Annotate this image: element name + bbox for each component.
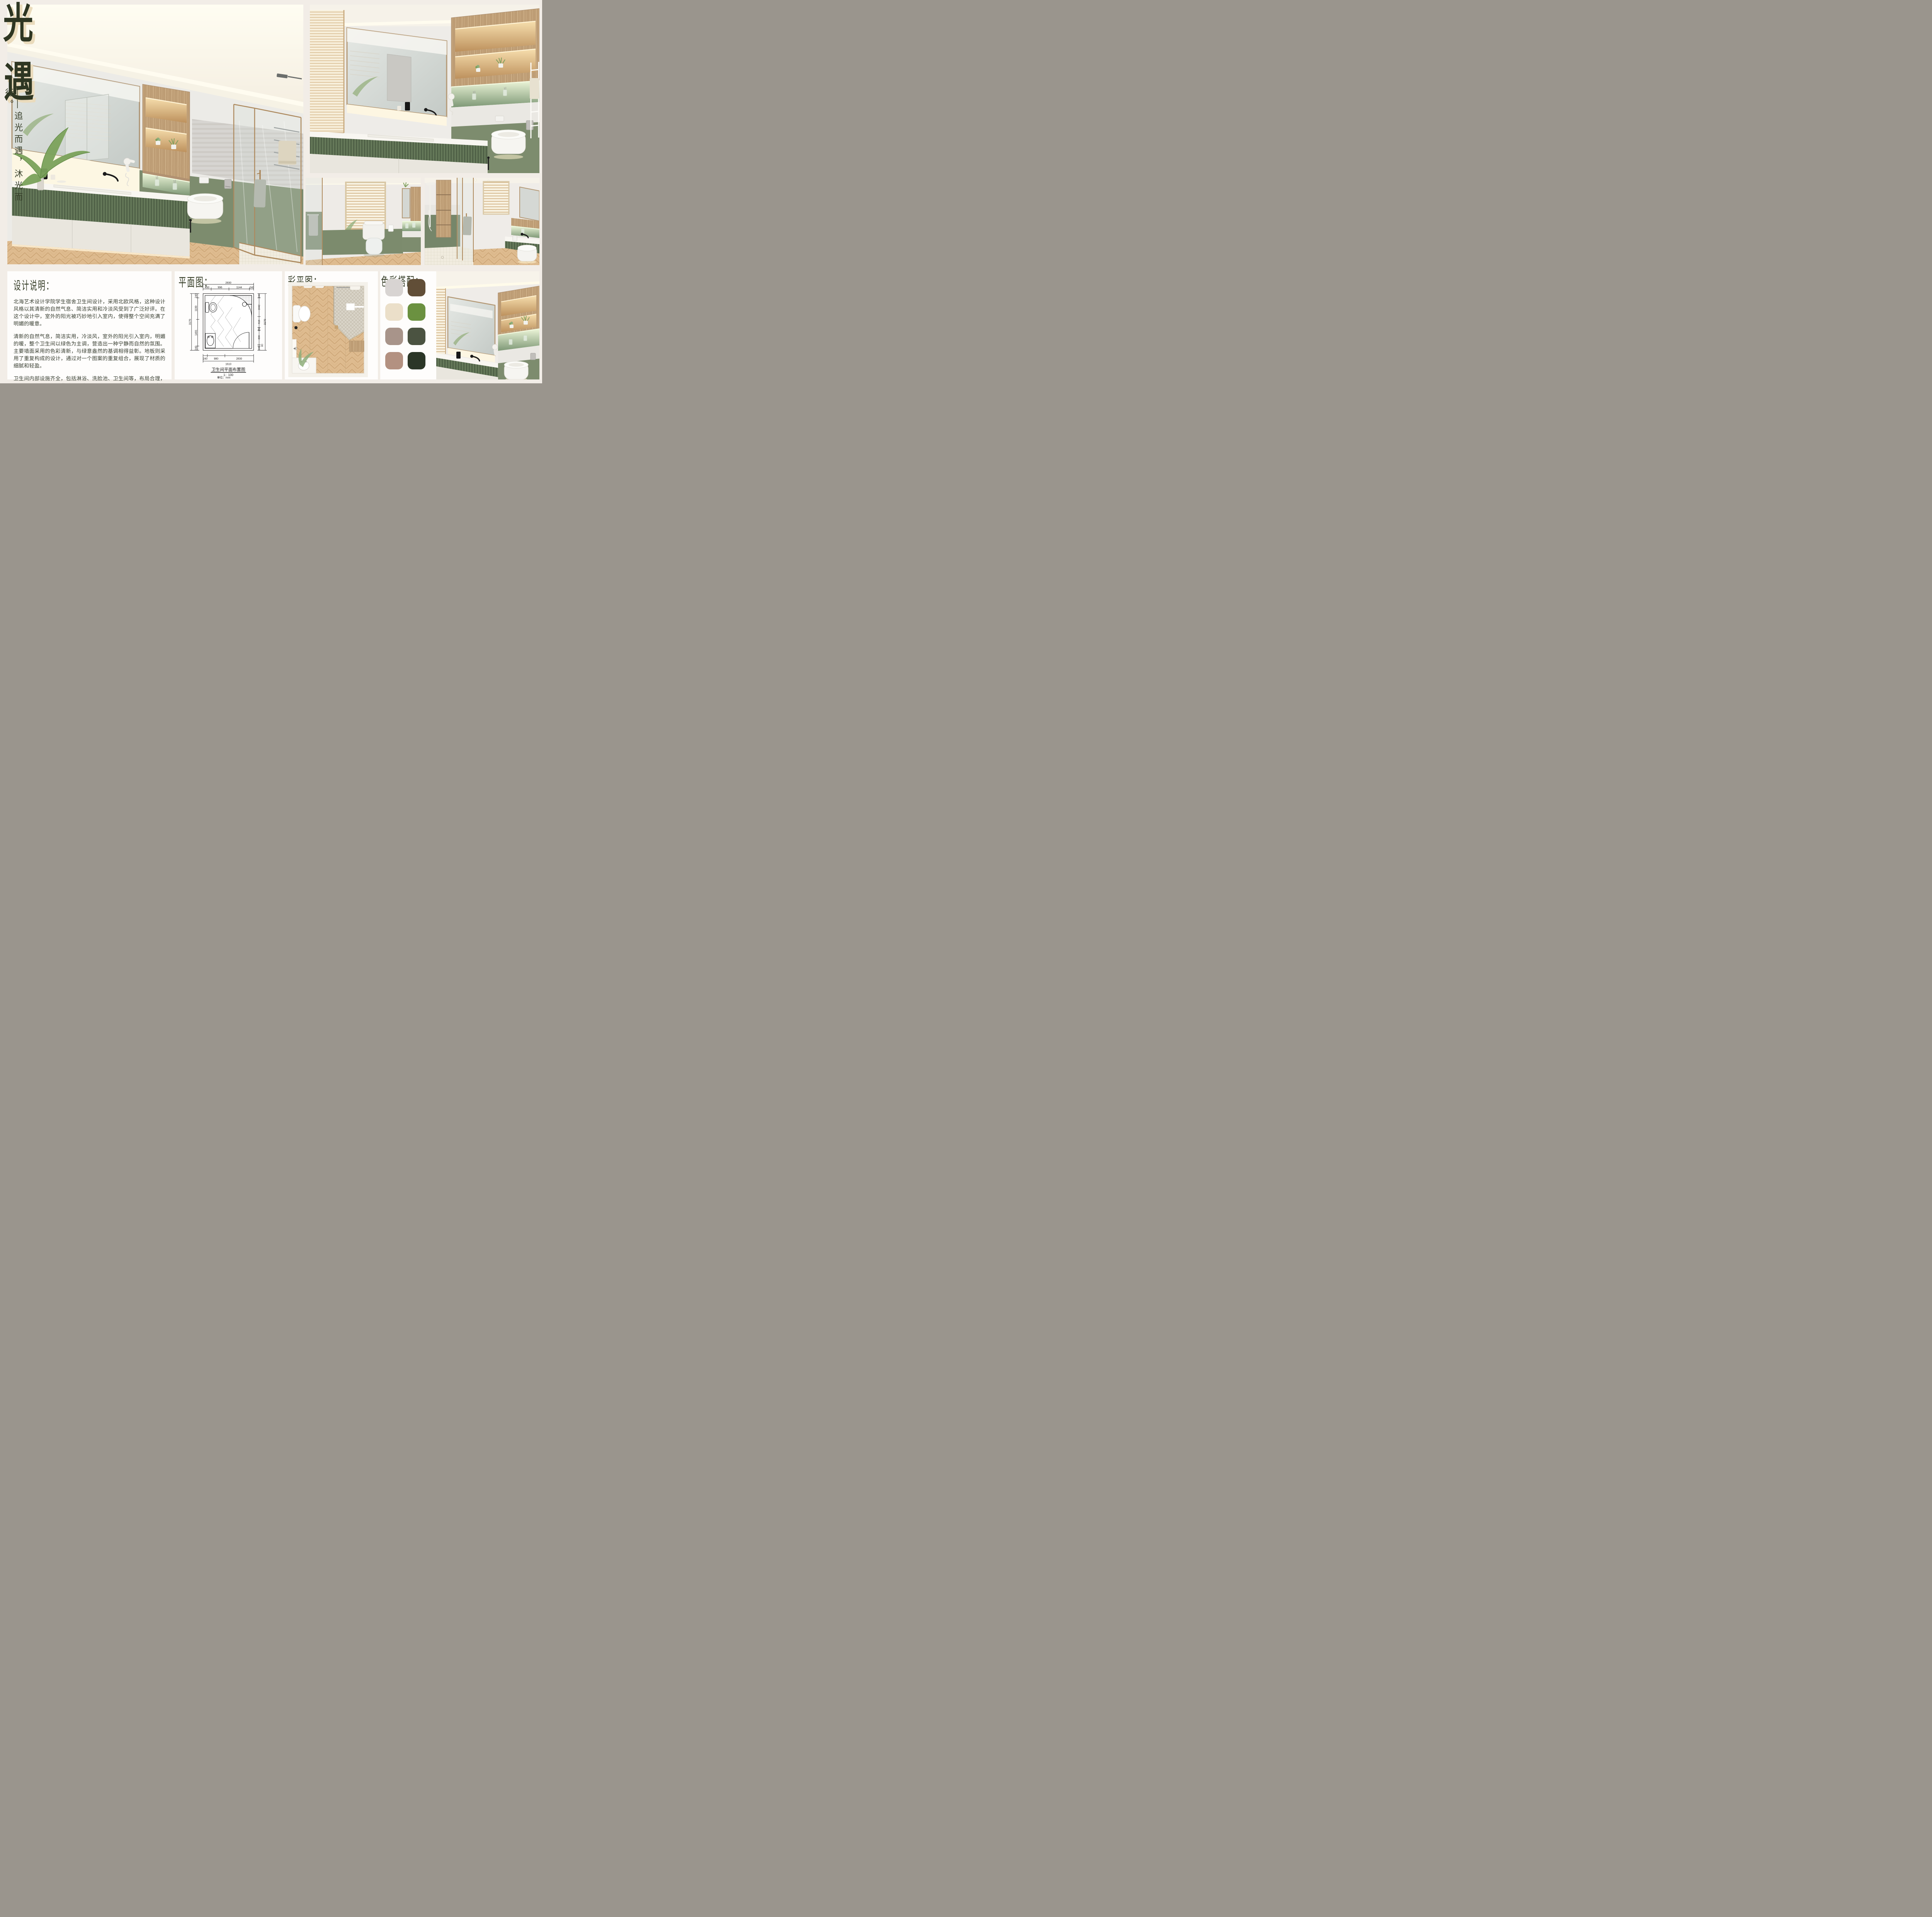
panel-color-plan: 彩平图： (285, 271, 378, 379)
palette-swatch (385, 279, 403, 296)
floor-plan-unit: 单位：mm (217, 376, 231, 379)
palette-swatch (408, 279, 425, 296)
presentation-board: 设计说明： 北海艺术设计学院学生宿舍卫生间设计，采用北欧风格，这种设计风格以其清… (0, 0, 542, 383)
palette-swatch (408, 352, 425, 369)
dim-label: 1199 (195, 306, 198, 311)
dim-label: 2830 (225, 282, 231, 284)
render-main-illustration (7, 5, 303, 264)
render-vanity-detail (310, 5, 539, 173)
dim-label: 1610 (225, 363, 231, 366)
poster-title-char-1: 光 (3, 2, 33, 44)
render-main-bathroom (7, 5, 303, 264)
render-bottom-right (436, 271, 539, 379)
dim-label: 1042 (258, 304, 260, 310)
poster-subtitle: ——追光而遇，沐光而行。 (4, 88, 22, 216)
render-toilet-window (306, 178, 421, 265)
color-plan-illustration (288, 282, 368, 377)
palette-swatch (385, 303, 403, 321)
dim-label: 240 (258, 346, 260, 350)
dim-label: 980 (214, 357, 218, 360)
render-toilet-window-illustration (306, 178, 421, 265)
panel-floor-plan: 平面图： (175, 271, 282, 379)
design-notes-heading: 设计说明： (14, 277, 165, 293)
dim-label: 450 (205, 286, 209, 289)
dim-label: 3170 (264, 319, 267, 325)
floor-plan-title: 卫生间平面布置图 (211, 367, 245, 372)
dim-label: 1144 (236, 286, 242, 289)
dim-label: 240 (195, 294, 198, 298)
floor-plan-drawing: 2830 450 996 1144 240 240 980 2830 1610 … (175, 281, 282, 379)
dim-label: 800 (258, 335, 260, 339)
render-bottom-right-illustration (436, 271, 539, 379)
design-notes-paragraph-2: 清新的自然气息，简洁实用，冷淡风，室外的阳光引入室内，明媚的暖，整个卫生间以绿色… (14, 333, 165, 369)
dim-label: 618 (258, 320, 260, 324)
palette-swatch (385, 328, 403, 345)
palette-swatch (385, 352, 403, 369)
render-shower-vanity-illustration (425, 178, 539, 265)
render-vanity-illustration (310, 5, 539, 173)
dim-label: 240 (250, 286, 254, 289)
dim-label: 240 (195, 346, 198, 350)
dim-label: 1491 (195, 330, 198, 336)
render-shower-vanity (425, 178, 539, 265)
panel-design-notes: 设计说明： 北海艺术设计学院学生宿舍卫生间设计，采用北欧风格，这种设计风格以其清… (7, 271, 172, 379)
dim-label: 996 (218, 286, 222, 289)
panel-palette: 色彩搭配： (380, 271, 539, 379)
dim-label: 80 (261, 344, 264, 347)
design-notes-paragraph-3: 卫生间内部设施齐全，包括淋浴、洗脸池、卫生间等，布局合理，使用起来十分便利。此外… (14, 375, 165, 383)
dim-label: 240 (258, 294, 260, 298)
dim-label: 3170 (189, 319, 192, 325)
dim-label: 2830 (236, 357, 242, 360)
dim-label: 240 (203, 357, 207, 360)
dim-label: 150 (258, 327, 260, 331)
palette-swatch (408, 328, 425, 345)
palette-swatch (408, 303, 425, 321)
design-notes-paragraph-1: 北海艺术设计学院学生宿舍卫生间设计，采用北欧风格，这种设计风格以其清新的自然气息… (14, 298, 165, 327)
